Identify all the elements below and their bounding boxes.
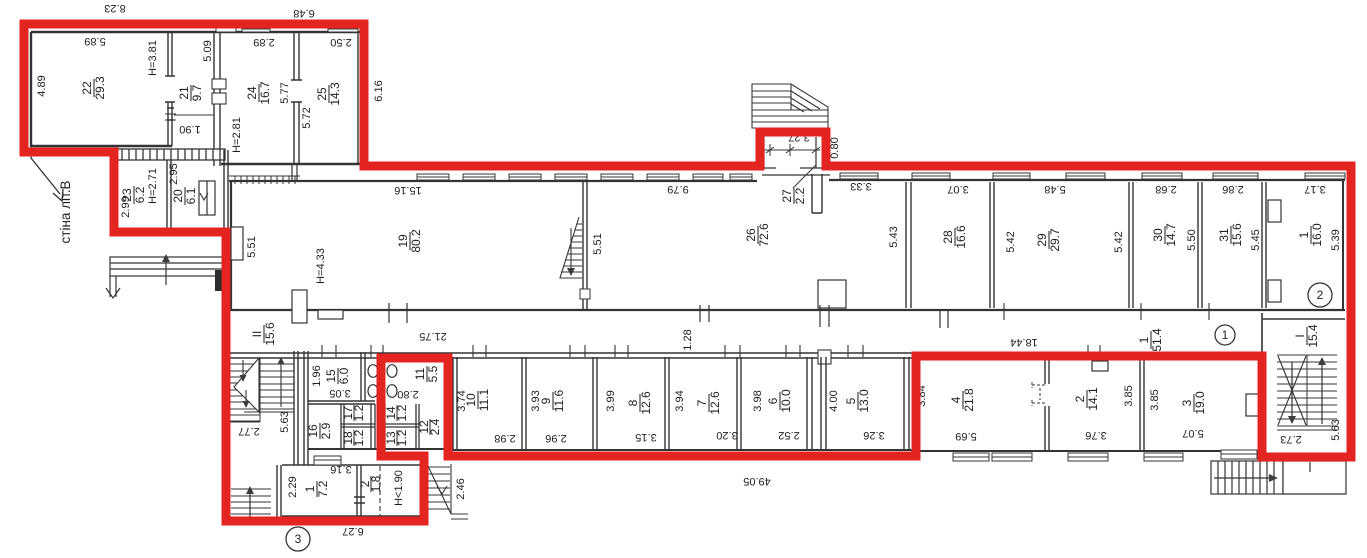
svg-text:16.6: 16.6 xyxy=(954,225,968,249)
svg-text:16: 16 xyxy=(306,424,320,438)
svg-text:2.98: 2.98 xyxy=(494,432,515,444)
svg-text:5.72: 5.72 xyxy=(301,107,313,128)
svg-text:1.2: 1.2 xyxy=(395,429,409,446)
svg-text:5.89: 5.89 xyxy=(84,35,105,47)
svg-text:3: 3 xyxy=(1180,399,1194,406)
svg-text:15: 15 xyxy=(324,369,338,383)
svg-text:1.2: 1.2 xyxy=(352,429,366,446)
svg-text:5.39: 5.39 xyxy=(1330,229,1342,250)
svg-text:H=2.71: H=2.71 xyxy=(147,168,159,204)
svg-text:2.68: 2.68 xyxy=(1155,183,1176,195)
svg-text:2.52: 2.52 xyxy=(778,429,799,441)
svg-text:H=4.33: H=4.33 xyxy=(315,248,327,284)
svg-text:5.42: 5.42 xyxy=(1113,231,1125,252)
svg-text:2.50: 2.50 xyxy=(330,36,351,48)
svg-text:14.7: 14.7 xyxy=(1164,223,1178,247)
svg-text:2: 2 xyxy=(1073,395,1087,402)
svg-text:15.6: 15.6 xyxy=(1230,223,1244,247)
svg-text:1: 1 xyxy=(1222,328,1229,342)
svg-text:6.48: 6.48 xyxy=(293,7,314,19)
svg-text:18.44: 18.44 xyxy=(1010,336,1038,348)
svg-text:51.4: 51.4 xyxy=(1150,328,1164,352)
svg-text:15.16: 15.16 xyxy=(394,184,422,196)
svg-text:29.3: 29.3 xyxy=(93,76,107,100)
svg-text:2.95: 2.95 xyxy=(168,163,180,184)
svg-text:1.8: 1.8 xyxy=(369,475,383,492)
svg-text:1: 1 xyxy=(1137,336,1151,343)
svg-text:30: 30 xyxy=(1151,228,1165,242)
svg-text:7.2: 7.2 xyxy=(316,480,330,497)
svg-text:5.69: 5.69 xyxy=(955,430,976,442)
svg-text:29.7: 29.7 xyxy=(1048,228,1062,252)
svg-text:11: 11 xyxy=(413,367,427,380)
svg-text:3.07: 3.07 xyxy=(947,183,968,195)
svg-text:11.6: 11.6 xyxy=(552,389,566,412)
svg-text:2: 2 xyxy=(1317,288,1324,302)
svg-text:26: 26 xyxy=(744,228,758,242)
svg-text:5.09: 5.09 xyxy=(202,40,214,61)
svg-text:6: 6 xyxy=(766,397,780,404)
svg-text:3.85: 3.85 xyxy=(1123,385,1135,406)
svg-text:3: 3 xyxy=(295,532,302,546)
svg-text:29: 29 xyxy=(1035,233,1049,247)
svg-text:2.73: 2.73 xyxy=(1280,433,1301,445)
svg-text:21: 21 xyxy=(177,86,191,100)
svg-text:8: 8 xyxy=(626,399,640,406)
svg-text:1.90: 1.90 xyxy=(179,123,200,135)
svg-text:31: 31 xyxy=(1217,228,1231,242)
svg-text:13.0: 13.0 xyxy=(857,389,871,413)
svg-text:3.05: 3.05 xyxy=(329,387,350,399)
svg-text:21.8: 21.8 xyxy=(962,388,976,412)
svg-text:H<1.90: H<1.90 xyxy=(393,470,405,506)
svg-text:2.80: 2.80 xyxy=(397,388,418,400)
svg-text:3.33: 3.33 xyxy=(850,180,871,192)
svg-text:6.27: 6.27 xyxy=(342,525,363,537)
svg-text:3.17: 3.17 xyxy=(1304,183,1325,195)
svg-text:H=3.81: H=3.81 xyxy=(147,40,159,76)
svg-text:49.05: 49.05 xyxy=(743,475,771,487)
svg-text:21.75: 21.75 xyxy=(419,330,447,342)
svg-text:3.16: 3.16 xyxy=(330,463,351,475)
svg-text:15.4: 15.4 xyxy=(1306,324,1320,348)
svg-text:80.2: 80.2 xyxy=(409,229,423,253)
svg-text:2.29: 2.29 xyxy=(287,476,299,497)
svg-text:12.6: 12.6 xyxy=(708,391,722,415)
svg-text:1: 1 xyxy=(1297,231,1311,238)
svg-text:3.94: 3.94 xyxy=(674,390,686,411)
svg-text:1.28: 1.28 xyxy=(682,329,694,350)
svg-text:5.50: 5.50 xyxy=(1186,229,1198,250)
svg-text:3.85: 3.85 xyxy=(1149,389,1161,410)
svg-text:6.1: 6.1 xyxy=(184,187,198,204)
svg-text:3.26: 3.26 xyxy=(863,429,884,441)
svg-text:5.45: 5.45 xyxy=(1250,229,1262,250)
svg-text:2.89: 2.89 xyxy=(253,36,274,48)
svg-text:3.20: 3.20 xyxy=(716,429,737,441)
svg-text:5.42: 5.42 xyxy=(1005,231,1017,252)
svg-text:25: 25 xyxy=(315,87,329,101)
svg-text:5.43: 5.43 xyxy=(888,226,900,247)
svg-text:5: 5 xyxy=(844,397,858,404)
svg-text:6.16: 6.16 xyxy=(373,80,385,101)
svg-text:5.48: 5.48 xyxy=(1044,183,1065,195)
svg-text:4.89: 4.89 xyxy=(36,75,48,96)
svg-text:22: 22 xyxy=(80,81,94,95)
svg-text:H=2.81: H=2.81 xyxy=(231,117,243,153)
svg-text:1: 1 xyxy=(303,485,317,492)
svg-text:23: 23 xyxy=(120,188,134,202)
svg-text:5.5: 5.5 xyxy=(426,365,440,382)
svg-text:16.0: 16.0 xyxy=(1310,223,1324,247)
svg-text:3.76: 3.76 xyxy=(1085,429,1106,441)
svg-text:15.6: 15.6 xyxy=(263,322,277,346)
svg-text:10: 10 xyxy=(464,393,478,407)
svg-text:5.51: 5.51 xyxy=(246,236,258,257)
svg-text:19.0: 19.0 xyxy=(1193,391,1207,415)
svg-text:20: 20 xyxy=(171,189,185,203)
svg-text:4: 4 xyxy=(949,396,963,403)
svg-text:9: 9 xyxy=(539,397,553,404)
svg-text:2.9: 2.9 xyxy=(319,422,333,439)
svg-text:3.15: 3.15 xyxy=(635,431,656,443)
svg-text:2.4: 2.4 xyxy=(428,418,442,435)
svg-text:5.51: 5.51 xyxy=(592,233,604,254)
svg-text:2.86: 2.86 xyxy=(1222,183,1243,195)
svg-text:5.77: 5.77 xyxy=(279,82,291,103)
svg-text:10.0: 10.0 xyxy=(779,389,793,413)
svg-text:5.63: 5.63 xyxy=(279,411,291,432)
svg-text:3.98: 3.98 xyxy=(752,390,764,411)
svg-text:12.6: 12.6 xyxy=(639,391,653,415)
svg-text:9.79: 9.79 xyxy=(667,183,688,195)
svg-text:5.63: 5.63 xyxy=(1330,419,1342,440)
svg-text:2.77: 2.77 xyxy=(238,425,259,437)
svg-text:0.80: 0.80 xyxy=(829,137,841,158)
svg-text:1.2: 1.2 xyxy=(352,404,366,421)
svg-text:8.23: 8.23 xyxy=(104,2,125,14)
svg-text:2.46: 2.46 xyxy=(455,478,467,499)
svg-text:6.0: 6.0 xyxy=(337,367,351,384)
svg-text:9.7: 9.7 xyxy=(190,84,204,101)
svg-text:2.2: 2.2 xyxy=(793,187,807,204)
svg-text:14.3: 14.3 xyxy=(328,82,342,106)
svg-text:24: 24 xyxy=(245,86,259,100)
svg-text:11.1: 11.1 xyxy=(477,388,491,411)
svg-text:4.00: 4.00 xyxy=(828,390,840,411)
svg-text:1.2: 1.2 xyxy=(395,404,409,421)
svg-text:19: 19 xyxy=(396,234,410,248)
svg-text:5.07: 5.07 xyxy=(1182,427,1203,439)
svg-text:6.2: 6.2 xyxy=(133,186,147,203)
svg-text:16.7: 16.7 xyxy=(258,81,272,105)
svg-text:3.99: 3.99 xyxy=(605,390,617,411)
svg-text:2.96: 2.96 xyxy=(545,432,566,444)
svg-text:стіна літ.В: стіна літ.В xyxy=(58,181,73,244)
svg-text:72.6: 72.6 xyxy=(757,223,771,247)
svg-text:I: I xyxy=(1293,334,1307,337)
svg-text:28: 28 xyxy=(941,230,955,244)
svg-text:II: II xyxy=(250,331,264,338)
svg-text:27: 27 xyxy=(780,189,794,203)
svg-text:1.96: 1.96 xyxy=(311,365,323,386)
svg-text:14.1: 14.1 xyxy=(1086,387,1100,411)
svg-text:7: 7 xyxy=(695,399,709,406)
